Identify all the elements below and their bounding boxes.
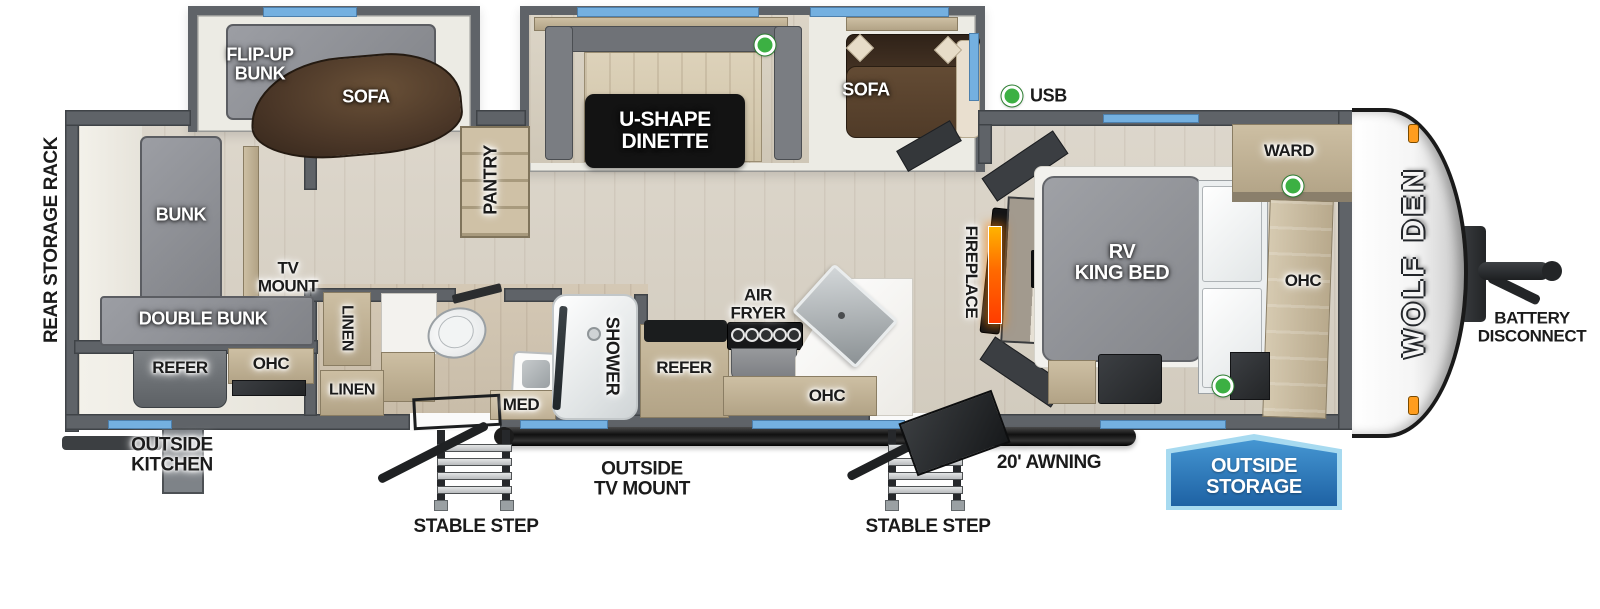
window [577, 7, 759, 17]
rv-king-bed-label: RVKING BED [1075, 242, 1170, 284]
wolf-den-logo: WOLF DEN [1398, 166, 1429, 358]
tv-mount-label: TVMOUNT [258, 259, 318, 294]
window [108, 420, 172, 429]
stove-burner [787, 328, 801, 342]
window [263, 7, 357, 17]
wall [476, 110, 526, 126]
rear-room-door [243, 146, 259, 304]
floorplan-canvas: FLIP-UPBUNK SOFA U-SHAPEDINETTE SOFA PAN… [0, 0, 1600, 609]
vanity-counter [381, 293, 437, 355]
fireplace-label: FIREPLACE [962, 226, 980, 319]
clearance-light [1408, 124, 1419, 143]
shower-drain [587, 327, 601, 341]
hitch-tongue [1478, 262, 1550, 280]
rear-storage-rack-label: REAR STORAGE RACK [42, 137, 62, 343]
stable-step-right-label: STABLE STEP [865, 517, 990, 537]
kitchen-refer-label: REFER [656, 359, 712, 377]
kitchen-lower-cabinet [723, 376, 877, 416]
main-sofa-label: SOFA [842, 81, 889, 100]
usb-legend-label: USB [1030, 87, 1067, 106]
usb-legend-dot [1002, 86, 1023, 107]
step-rung [437, 458, 512, 466]
valance [846, 17, 958, 31]
usb-dot [755, 35, 776, 56]
step-foot [885, 500, 899, 511]
wall [65, 110, 79, 432]
window [1100, 420, 1226, 429]
rear-refer-label: REFER [152, 359, 208, 377]
air-fryer-label: AIRFRYER [731, 286, 786, 321]
bedroom-chest [1098, 354, 1162, 404]
outside-tv-mount-label: OUTSIDETV MOUNT [594, 459, 690, 499]
bunk-label: BUNK [156, 206, 206, 225]
pantry-label: PANTRY [482, 145, 501, 215]
usb-dot [1213, 376, 1234, 397]
window [752, 420, 905, 429]
clearance-light [1408, 396, 1419, 415]
vanity-base [381, 352, 435, 402]
bedroom-ohc [1262, 199, 1334, 419]
fireplace-flame [988, 226, 1002, 324]
stove-burner [773, 328, 787, 342]
entry-door-frame [412, 394, 502, 431]
step-foot [500, 500, 514, 511]
window [969, 33, 979, 101]
wall [65, 110, 191, 126]
awning-tube [500, 427, 1136, 446]
awning-label: 20' AWNING [997, 453, 1101, 473]
wall [978, 124, 992, 164]
bedroom-ohc-label: OHC [1285, 272, 1322, 290]
bathroom-sink-bowl [522, 360, 550, 388]
step-foot [434, 500, 448, 511]
ward-label: WARD [1264, 142, 1314, 160]
dinette-bench-left [545, 26, 573, 160]
stable-step-left-label: STABLE STEP [413, 517, 538, 537]
outside-storage-label: OUTSIDESTORAGE [1206, 456, 1302, 498]
outside-kitchen-counter [232, 380, 306, 396]
usb-dot [1283, 176, 1304, 197]
rear-sofa-label: SOFA [342, 88, 389, 107]
stove-burner [745, 328, 759, 342]
double-bunk-label: DOUBLE BUNK [139, 310, 268, 329]
shower-label: SHOWER [603, 317, 622, 396]
hitch-coupler [1542, 261, 1562, 281]
stove-burner [731, 328, 745, 342]
kitchen-ohc-label: OHC [809, 387, 846, 405]
step-rung [437, 472, 512, 480]
window [1103, 114, 1199, 123]
kitchen-refrigerator-top [644, 320, 727, 342]
step-foot [951, 500, 965, 511]
dinette-bench-right [774, 26, 802, 160]
window [520, 420, 608, 429]
linen-upper-label: LINEN [338, 305, 355, 351]
step-rung [888, 486, 963, 494]
med-label: MED [503, 396, 540, 414]
stove-burner [759, 328, 773, 342]
linen-lower-label: LINEN [329, 383, 375, 400]
rear-ohc-label: OHC [253, 355, 290, 373]
window [810, 7, 949, 17]
kitchen-faucet [838, 312, 845, 319]
outside-kitchen-label: OUTSIDEKITCHEN [131, 435, 213, 475]
step-rung [437, 486, 512, 494]
battery-disconnect-label: BATTERYDISCONNECT [1478, 309, 1586, 344]
bedroom-chest [1230, 352, 1270, 400]
nightstand [1048, 360, 1096, 404]
flip-up-bunk-label: FLIP-UPBUNK [226, 45, 293, 82]
dinette-label: U-SHAPEDINETTE [619, 109, 711, 153]
